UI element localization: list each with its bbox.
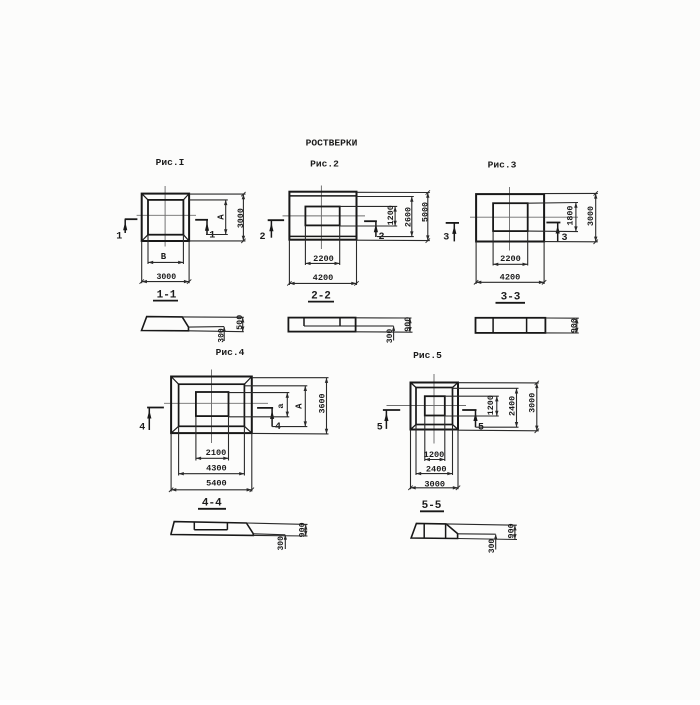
svg-text:3-3: 3-3	[501, 292, 521, 304]
svg-text:2200: 2200	[313, 254, 334, 264]
svg-text:2600: 2600	[404, 207, 414, 227]
svg-text:3000: 3000	[586, 206, 596, 226]
svg-text:300: 300	[277, 536, 286, 551]
svg-text:500: 500	[235, 315, 245, 330]
svg-text:1200: 1200	[424, 450, 445, 460]
svg-text:5: 5	[478, 422, 484, 433]
svg-text:900: 900	[507, 523, 517, 538]
svg-text:А: А	[295, 403, 305, 409]
svg-text:1800: 1800	[566, 206, 576, 226]
svg-text:А: А	[217, 214, 227, 220]
svg-text:2: 2	[259, 232, 265, 243]
svg-text:В: В	[161, 252, 167, 262]
svg-text:5400: 5400	[206, 479, 227, 489]
svg-text:Рис.I: Рис.I	[156, 157, 185, 168]
svg-text:3: 3	[443, 233, 449, 244]
svg-text:Рис.2: Рис.2	[310, 159, 339, 170]
svg-text:4200: 4200	[313, 273, 334, 283]
svg-text:4: 4	[275, 422, 281, 433]
svg-text:2200: 2200	[500, 254, 521, 264]
svg-text:900: 900	[569, 318, 579, 333]
svg-text:2400: 2400	[426, 465, 447, 475]
svg-text:1200: 1200	[386, 205, 396, 225]
svg-text:3000: 3000	[424, 480, 445, 490]
svg-text:Рис.4: Рис.4	[216, 347, 245, 358]
svg-text:4300: 4300	[206, 464, 227, 474]
svg-text:4200: 4200	[500, 273, 521, 283]
svg-text:Рис.5: Рис.5	[413, 350, 442, 361]
svg-text:5000: 5000	[420, 202, 430, 222]
svg-text:5: 5	[377, 422, 383, 433]
svg-text:а: а	[276, 403, 286, 408]
svg-text:2: 2	[378, 232, 384, 243]
svg-text:1200: 1200	[486, 395, 496, 415]
svg-text:2400: 2400	[507, 396, 517, 416]
svg-text:2-2: 2-2	[311, 290, 331, 302]
svg-text:300: 300	[386, 329, 395, 344]
svg-text:2100: 2100	[206, 448, 227, 458]
svg-text:3600: 3600	[317, 393, 327, 413]
svg-text:900: 900	[403, 317, 413, 332]
svg-text:3000: 3000	[156, 273, 176, 282]
svg-text:300: 300	[488, 539, 497, 554]
svg-text:4: 4	[139, 422, 145, 433]
svg-text:300: 300	[217, 328, 226, 343]
svg-text:3000: 3000	[236, 208, 246, 228]
svg-text:1: 1	[209, 231, 215, 242]
svg-text:1-1: 1-1	[157, 289, 177, 301]
svg-text:5-5: 5-5	[422, 500, 442, 512]
svg-text:Рис.3: Рис.3	[488, 160, 517, 171]
svg-text:1: 1	[116, 232, 122, 243]
svg-text:РОСТВЕРКИ: РОСТВЕРКИ	[306, 138, 358, 149]
svg-text:4-4: 4-4	[202, 498, 222, 510]
svg-text:900: 900	[298, 522, 308, 537]
svg-text:3000: 3000	[528, 393, 538, 413]
